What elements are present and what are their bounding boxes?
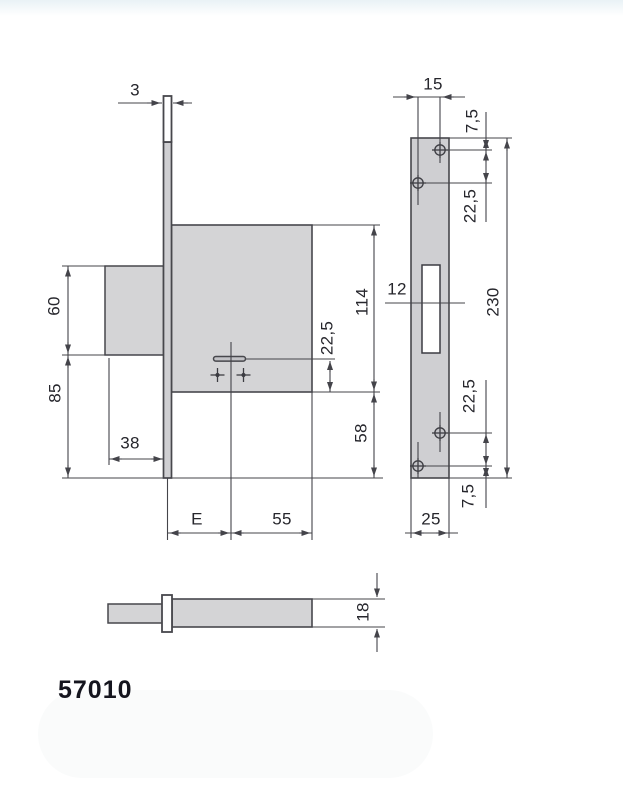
dim-top-to-first-screw: 7,5	[464, 109, 481, 134]
dim-faceplate-width: 25	[421, 511, 441, 528]
dim-case-bottom-extension: 58	[353, 423, 370, 443]
dim-faceplate-height: 230	[485, 287, 502, 316]
dim-box-depth: 38	[120, 435, 140, 452]
dim-keyway-width: 12	[387, 281, 407, 298]
dim-screw-horizontal-offset: 15	[423, 76, 443, 93]
dim-screw-pitch-bottom: 22,5	[461, 379, 478, 413]
top-rod	[164, 96, 172, 142]
faceplate-edge-strip	[164, 142, 172, 478]
keyway-cutout	[422, 265, 440, 353]
dim-last-screw-to-bottom: 7,5	[460, 484, 477, 509]
dim-case-height: 114	[354, 288, 371, 316]
drawing-canvas: 3 60 85 38 114 22,5 58 E 55 15 7,5 22,5 …	[0, 0, 623, 800]
bottom-view-dimension-lines	[312, 573, 385, 652]
lock-case-side	[172, 225, 313, 392]
cylinder-box-side	[105, 266, 164, 355]
lock-case-bottom-view	[108, 595, 312, 632]
dim-backset: E	[191, 511, 203, 528]
dim-box-to-axis-height: 60	[46, 296, 63, 316]
dim-faceplate-thickness: 3	[130, 82, 140, 99]
product-code: 57010	[58, 676, 133, 705]
dim-axis-to-case-bottom: 22,5	[319, 321, 336, 355]
faceplate-front-view	[411, 138, 449, 478]
dim-axis-to-plate-bottom: 85	[47, 383, 64, 403]
case-bottom	[172, 599, 312, 627]
lock-case-side-view	[105, 96, 312, 478]
dim-case-thickness: 18	[355, 602, 372, 622]
spindle-bottom	[108, 604, 163, 623]
faceplate-flange-bottom	[162, 595, 172, 632]
dim-screw-pitch-top: 22,5	[462, 189, 479, 223]
keyhole-slot	[214, 357, 246, 362]
dim-case-depth: 55	[272, 511, 292, 528]
